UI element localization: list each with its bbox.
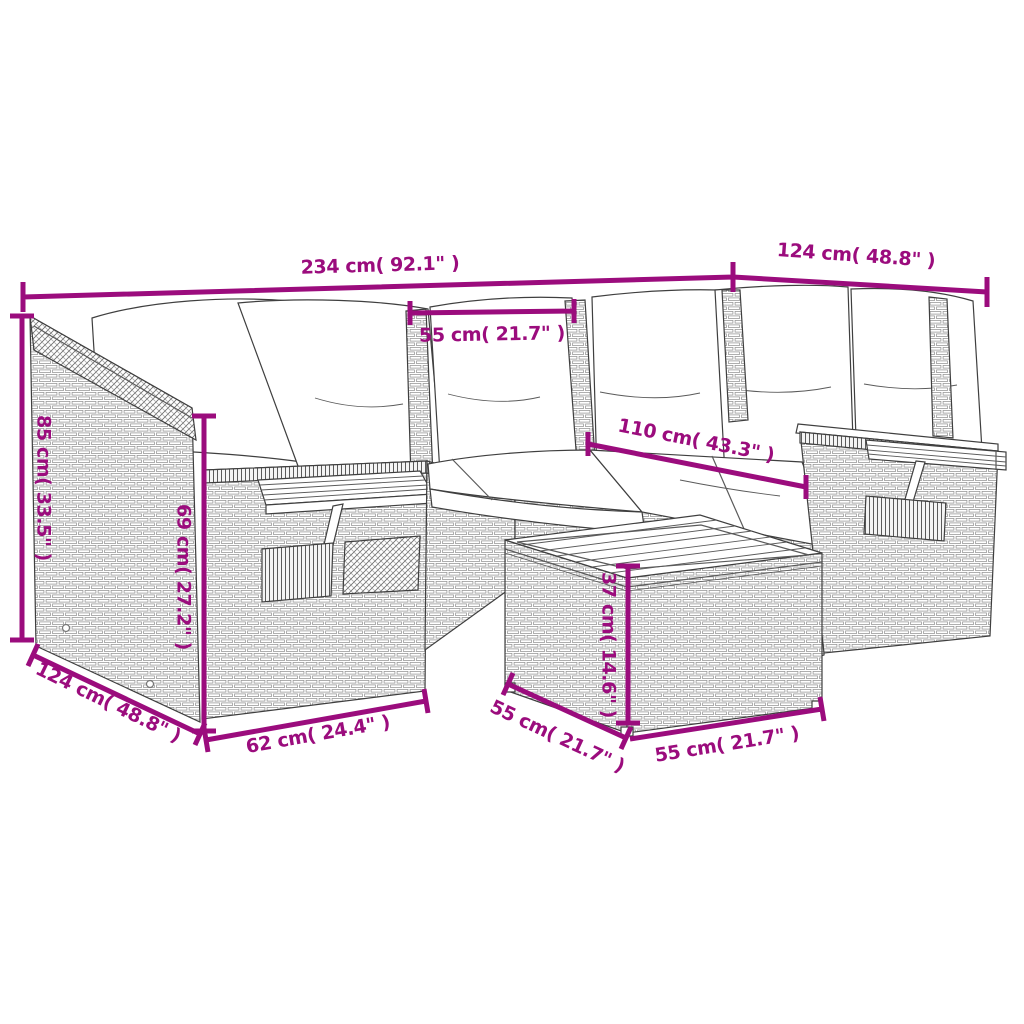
footstool-right-face — [627, 553, 822, 733]
dim-label-stool-height: 37 cm( 14.6" ) — [599, 572, 618, 718]
dim-label-seat-width: 55 cm( 21.7" ) — [419, 324, 565, 346]
dim-label-total-width: 234 cm( 92.1" ) — [300, 254, 459, 277]
dim-label-arm-height: 69 cm( 27.2" ) — [174, 504, 193, 650]
sofa-line-art — [0, 0, 1024, 1024]
product-dimension-diagram: 234 cm( 92.1" ) 124 cm( 48.8" ) 55 cm( 2… — [0, 0, 1024, 1024]
dim-label-back-height: 85 cm( 33.5" ) — [34, 415, 53, 561]
right-armrest — [796, 424, 1006, 653]
